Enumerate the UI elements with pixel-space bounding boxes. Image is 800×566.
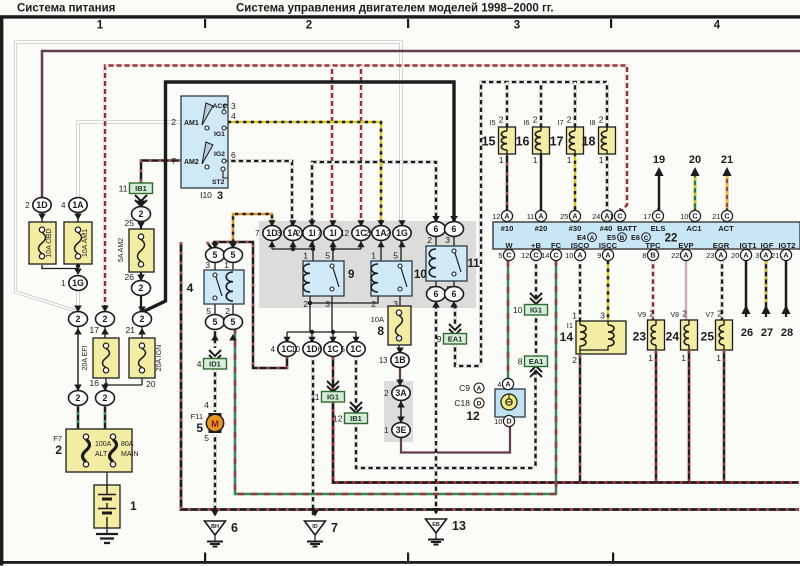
- svg-text:Система питания: Система питания: [17, 3, 115, 15]
- svg-text:2: 2: [103, 314, 108, 324]
- svg-text:5: 5: [196, 421, 203, 435]
- svg-text:I5: I5: [490, 118, 496, 127]
- svg-text:3: 3: [277, 229, 281, 238]
- svg-text:A: A: [783, 251, 788, 260]
- svg-text:2: 2: [55, 443, 62, 457]
- svg-text:D: D: [477, 401, 482, 408]
- svg-text:IGT1: IGT1: [740, 241, 758, 250]
- svg-text:5: 5: [231, 317, 236, 327]
- svg-text:ALT: ALT: [95, 451, 108, 458]
- svg-text:W: W: [505, 241, 513, 250]
- svg-text:EGR: EGR: [713, 241, 730, 250]
- svg-text:8: 8: [377, 324, 384, 338]
- svg-text:5: 5: [206, 306, 211, 316]
- svg-text:M: M: [211, 419, 219, 429]
- svg-text:5: 5: [231, 250, 236, 260]
- svg-text:IG2: IG2: [214, 151, 225, 158]
- svg-text:BH: BH: [211, 524, 219, 530]
- svg-text:2: 2: [717, 309, 722, 319]
- svg-text:4: 4: [231, 111, 236, 121]
- svg-text:2: 2: [682, 309, 687, 319]
- svg-text:2: 2: [371, 299, 376, 309]
- svg-text:Система управления двигателем: Система управления двигателем моделей 19…: [236, 3, 554, 15]
- svg-text:3: 3: [445, 235, 450, 245]
- svg-text:20: 20: [146, 379, 156, 389]
- svg-text:EVP: EVP: [678, 241, 693, 250]
- svg-text:21: 21: [712, 212, 720, 221]
- svg-text:ID: ID: [312, 524, 317, 530]
- svg-text:#10: #10: [501, 224, 514, 233]
- svg-text:+B: +B: [531, 241, 541, 250]
- svg-text:6: 6: [318, 345, 322, 354]
- svg-text:11: 11: [468, 258, 481, 270]
- svg-text:3: 3: [325, 299, 330, 309]
- svg-text:V9: V9: [637, 312, 646, 319]
- svg-text:2: 2: [103, 393, 108, 403]
- svg-text:13: 13: [452, 519, 466, 533]
- svg-text:#30: #30: [569, 224, 582, 233]
- svg-text:5: 5: [393, 251, 398, 261]
- svg-text:12: 12: [340, 229, 349, 238]
- svg-text:C18: C18: [454, 398, 470, 408]
- svg-text:2: 2: [533, 115, 538, 125]
- svg-text:17: 17: [643, 212, 651, 221]
- svg-text:6: 6: [452, 224, 457, 234]
- svg-text:C: C: [533, 251, 538, 260]
- svg-text:20A IGN: 20A IGN: [156, 345, 163, 371]
- svg-text:ACT: ACT: [718, 224, 734, 233]
- svg-text:AM2: AM2: [184, 159, 199, 166]
- svg-text:5: 5: [204, 433, 209, 443]
- svg-text:7: 7: [331, 521, 338, 535]
- svg-text:I10: I10: [200, 190, 212, 200]
- svg-text:AC1: AC1: [686, 224, 702, 233]
- svg-text:IG1: IG1: [327, 393, 339, 402]
- svg-text:12: 12: [521, 251, 529, 260]
- svg-text:1: 1: [572, 311, 577, 321]
- svg-text:6: 6: [434, 224, 439, 234]
- svg-text:7: 7: [255, 229, 259, 238]
- svg-text:ACC: ACC: [213, 103, 228, 110]
- svg-text:1I: 1I: [329, 228, 336, 238]
- svg-text:22: 22: [665, 233, 678, 245]
- svg-text:25: 25: [560, 212, 568, 221]
- svg-text:3: 3: [217, 190, 223, 202]
- svg-text:11: 11: [311, 392, 320, 402]
- svg-text:I7: I7: [558, 118, 564, 127]
- svg-text:C: C: [617, 212, 622, 221]
- svg-text:EA1: EA1: [448, 335, 463, 344]
- svg-text:27: 27: [761, 327, 773, 339]
- svg-text:BATT: BATT: [617, 224, 637, 233]
- svg-text:ST2: ST2: [212, 179, 225, 186]
- svg-text:9: 9: [437, 334, 442, 344]
- svg-text:2: 2: [303, 299, 308, 309]
- svg-text:4: 4: [187, 281, 194, 295]
- svg-text:1: 1: [97, 20, 104, 32]
- svg-text:80A: 80A: [121, 441, 134, 448]
- svg-text:8: 8: [518, 357, 523, 367]
- svg-text:FC: FC: [551, 241, 562, 250]
- svg-text:4: 4: [497, 380, 501, 389]
- svg-text:2: 2: [499, 115, 504, 125]
- svg-text:4: 4: [204, 400, 209, 410]
- svg-text:9: 9: [597, 251, 601, 260]
- svg-text:9: 9: [348, 269, 354, 281]
- svg-text:1D: 1D: [306, 344, 317, 354]
- svg-text:F7: F7: [53, 434, 62, 443]
- svg-text:17: 17: [550, 135, 564, 149]
- svg-text:TPC: TPC: [645, 241, 661, 250]
- svg-text:B: B: [620, 235, 625, 242]
- svg-text:2: 2: [296, 229, 300, 238]
- svg-text:1C: 1C: [350, 344, 362, 354]
- svg-text:1: 1: [609, 212, 613, 221]
- svg-text:1G: 1G: [396, 228, 408, 238]
- svg-text:EA1: EA1: [529, 357, 544, 366]
- svg-text:V8: V8: [670, 312, 679, 319]
- svg-text:6: 6: [452, 289, 457, 299]
- svg-text:2: 2: [140, 314, 145, 324]
- svg-text:IGT2: IGT2: [779, 241, 796, 250]
- svg-text:1: 1: [303, 251, 308, 261]
- svg-text:2: 2: [384, 389, 388, 398]
- svg-text:I8: I8: [590, 118, 596, 127]
- svg-text:16: 16: [90, 378, 100, 388]
- svg-text:10A AM1: 10A AM1: [82, 229, 89, 257]
- svg-text:4: 4: [271, 345, 276, 354]
- svg-text:EB: EB: [432, 522, 440, 528]
- svg-text:C: C: [553, 251, 558, 260]
- svg-text:2: 2: [139, 283, 144, 293]
- svg-text:1: 1: [371, 251, 376, 261]
- svg-text:IB1: IB1: [135, 184, 147, 193]
- svg-text:IG1: IG1: [530, 306, 542, 315]
- svg-text:2: 2: [76, 393, 81, 403]
- svg-text:ISCO: ISCO: [571, 241, 590, 250]
- svg-text:10A OBD: 10A OBD: [46, 228, 53, 257]
- svg-text:A: A: [590, 235, 595, 242]
- svg-text:A: A: [743, 251, 748, 260]
- svg-text:10: 10: [513, 305, 523, 315]
- svg-text:28: 28: [781, 327, 793, 339]
- svg-text:1: 1: [533, 155, 538, 165]
- svg-text:12: 12: [333, 414, 343, 424]
- svg-text:V7: V7: [705, 312, 714, 319]
- svg-text:C: C: [506, 251, 511, 260]
- svg-text:3: 3: [600, 311, 605, 321]
- svg-text:17: 17: [90, 325, 100, 335]
- svg-text:ISCC: ISCC: [599, 241, 618, 250]
- svg-text:IG1: IG1: [214, 131, 225, 138]
- svg-text:C: C: [692, 212, 697, 221]
- svg-text:A: A: [763, 251, 768, 260]
- svg-text:E6: E6: [631, 233, 640, 242]
- svg-text:#40: #40: [600, 224, 613, 233]
- svg-text:1: 1: [716, 353, 721, 363]
- svg-text:21: 21: [126, 325, 136, 335]
- svg-text:11: 11: [119, 184, 128, 194]
- svg-text:10: 10: [680, 212, 688, 221]
- svg-text:F11: F11: [191, 412, 203, 421]
- svg-text:2: 2: [76, 314, 81, 324]
- svg-text:5: 5: [498, 251, 502, 260]
- svg-text:1I: 1I: [308, 228, 315, 238]
- svg-text:7: 7: [171, 156, 176, 166]
- svg-text:20A EFI: 20A EFI: [82, 345, 89, 370]
- svg-text:1: 1: [681, 353, 686, 363]
- svg-text:26: 26: [741, 327, 753, 339]
- svg-text:15: 15: [482, 135, 496, 149]
- svg-text:10: 10: [494, 417, 502, 426]
- svg-text:1C: 1C: [327, 344, 339, 354]
- svg-text:A: A: [504, 212, 509, 221]
- svg-text:1A: 1A: [72, 200, 84, 210]
- svg-text:1: 1: [61, 279, 65, 288]
- svg-text:21: 21: [771, 251, 779, 260]
- svg-text:6: 6: [231, 521, 238, 535]
- svg-text:A: A: [572, 212, 577, 221]
- svg-text:2: 2: [427, 235, 432, 245]
- svg-text:4: 4: [61, 201, 66, 210]
- svg-text:#20: #20: [535, 224, 548, 233]
- svg-text:10: 10: [565, 251, 573, 260]
- svg-text:5: 5: [213, 317, 218, 327]
- svg-text:AM1: AM1: [184, 120, 199, 127]
- svg-text:23: 23: [706, 251, 714, 260]
- svg-text:19: 19: [653, 154, 665, 166]
- svg-text:I1: I1: [567, 321, 573, 330]
- svg-text:18: 18: [582, 135, 596, 149]
- svg-text:25: 25: [701, 330, 715, 344]
- svg-text:11: 11: [527, 212, 535, 221]
- svg-text:ELS: ELS: [651, 224, 666, 233]
- svg-text:12: 12: [492, 212, 500, 221]
- svg-text:2: 2: [25, 201, 29, 210]
- svg-text:A: A: [505, 380, 510, 389]
- svg-text:ID1: ID1: [209, 360, 221, 369]
- svg-text:20: 20: [731, 251, 739, 260]
- svg-text:3: 3: [231, 101, 236, 111]
- svg-text:A: A: [538, 212, 543, 221]
- svg-text:2: 2: [171, 117, 176, 127]
- svg-text:10A: 10A: [371, 315, 384, 324]
- svg-text:B: B: [650, 251, 655, 260]
- svg-text:4: 4: [714, 20, 721, 32]
- svg-text:1: 1: [384, 426, 388, 435]
- svg-text:2: 2: [599, 115, 604, 125]
- svg-text:2: 2: [572, 355, 577, 365]
- svg-text:3A: 3A: [395, 388, 407, 398]
- svg-text:22: 22: [671, 251, 679, 260]
- svg-text:I6: I6: [524, 118, 530, 127]
- svg-text:2: 2: [306, 20, 312, 32]
- svg-text:2: 2: [139, 209, 144, 219]
- svg-text:8: 8: [642, 251, 646, 260]
- svg-text:20: 20: [689, 154, 701, 166]
- svg-text:1G: 1G: [72, 278, 84, 288]
- svg-text:MAIN: MAIN: [121, 451, 139, 458]
- svg-text:24: 24: [666, 330, 680, 344]
- svg-text:1D: 1D: [36, 200, 47, 210]
- svg-text:A: A: [683, 251, 688, 260]
- svg-text:1: 1: [567, 155, 572, 165]
- svg-text:2: 2: [567, 115, 572, 125]
- svg-text:1: 1: [499, 155, 504, 165]
- svg-text:100A: 100A: [95, 441, 112, 448]
- svg-text:2: 2: [365, 229, 369, 238]
- svg-text:5: 5: [341, 345, 346, 354]
- svg-text:7: 7: [317, 229, 321, 238]
- svg-text:C: C: [724, 212, 729, 221]
- svg-text:1: 1: [130, 499, 137, 513]
- svg-text:21: 21: [721, 154, 733, 166]
- svg-text:26: 26: [125, 272, 135, 282]
- svg-text:3: 3: [755, 251, 759, 260]
- svg-text:14: 14: [560, 330, 574, 344]
- svg-text:4: 4: [197, 359, 202, 369]
- svg-text:6: 6: [231, 150, 236, 160]
- svg-text:23: 23: [633, 330, 647, 344]
- svg-text:12: 12: [466, 409, 480, 423]
- svg-text:5: 5: [213, 250, 218, 260]
- svg-text:1: 1: [599, 155, 604, 165]
- svg-text:5A AM2: 5A AM2: [118, 238, 125, 262]
- svg-text:3: 3: [514, 20, 520, 32]
- svg-text:3E: 3E: [396, 425, 407, 435]
- svg-text:A: A: [605, 251, 610, 260]
- svg-text:A: A: [577, 251, 582, 260]
- svg-text:1: 1: [648, 353, 653, 363]
- svg-text:A: A: [477, 386, 482, 393]
- svg-text:1B: 1B: [394, 355, 405, 365]
- svg-text:C: C: [655, 212, 660, 221]
- svg-text:C9: C9: [459, 383, 470, 393]
- svg-text:10: 10: [414, 269, 427, 281]
- svg-text:13: 13: [379, 356, 388, 365]
- svg-text:IB1: IB1: [350, 414, 362, 423]
- svg-text:14: 14: [541, 251, 549, 260]
- svg-text:2: 2: [386, 229, 390, 238]
- svg-text:6: 6: [434, 289, 439, 299]
- svg-text:IGF: IGF: [761, 241, 774, 250]
- svg-text:25: 25: [125, 218, 135, 228]
- svg-text:A: A: [718, 251, 723, 260]
- svg-text:16: 16: [516, 135, 530, 149]
- svg-text:5: 5: [325, 251, 330, 261]
- svg-text:2: 2: [649, 309, 654, 319]
- svg-text:24: 24: [592, 212, 600, 221]
- svg-text:D: D: [506, 417, 511, 426]
- svg-text:10: 10: [291, 345, 300, 354]
